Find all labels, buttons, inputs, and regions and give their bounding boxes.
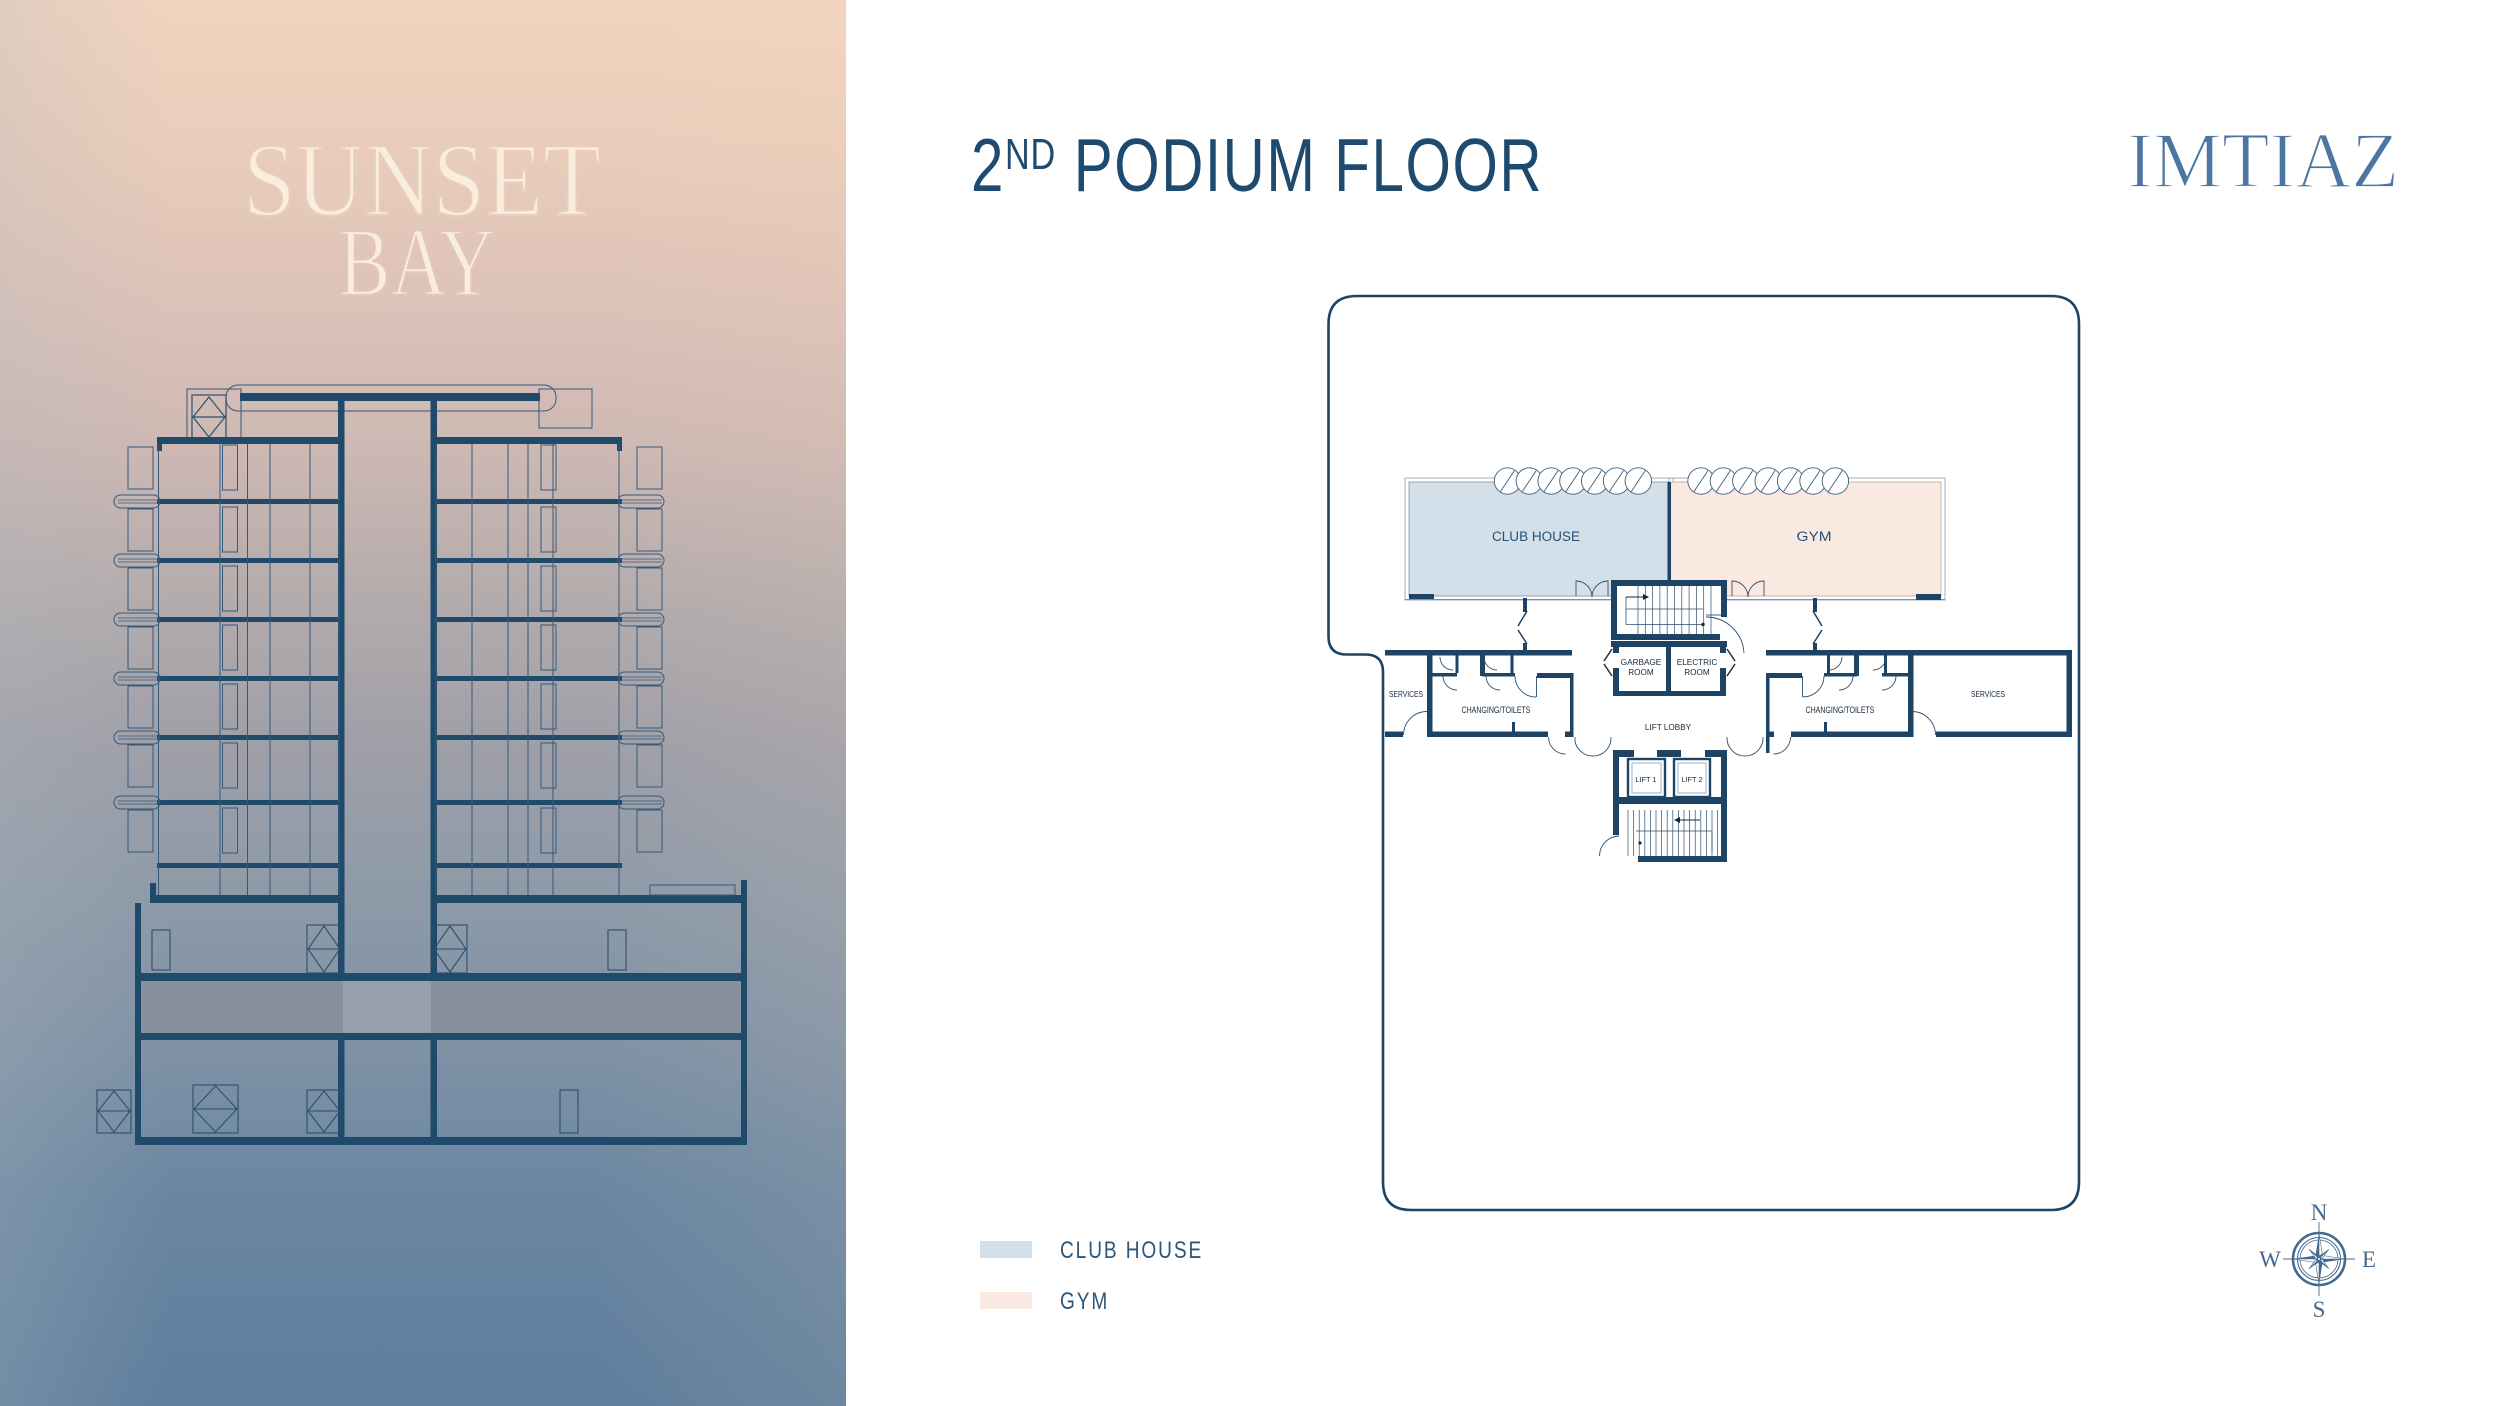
svg-text:LIFT 1: LIFT 1	[1635, 775, 1656, 784]
svg-text:IMTIAZ: IMTIAZ	[2127, 120, 2399, 200]
svg-text:W: W	[2259, 1247, 2281, 1272]
svg-text:GYM: GYM	[1797, 529, 1832, 544]
svg-text:SERVICES: SERVICES	[1971, 690, 2005, 699]
svg-text:CLUB HOUSE: CLUB HOUSE	[1492, 529, 1580, 544]
svg-text:S: S	[2313, 1297, 2326, 1322]
svg-text:ROOM: ROOM	[1684, 668, 1710, 677]
svg-text:N: N	[2311, 1200, 2328, 1225]
svg-text:GARBAGE: GARBAGE	[1621, 658, 1662, 667]
svg-text:CHANGING/TOILETS: CHANGING/TOILETS	[1462, 705, 1531, 715]
svg-text:E: E	[2362, 1247, 2376, 1272]
svg-text:LIFT LOBBY: LIFT LOBBY	[1645, 723, 1692, 732]
svg-text:BAY: BAY	[339, 209, 496, 316]
svg-text:SERVICES: SERVICES	[1389, 690, 1423, 699]
svg-text:ROOM: ROOM	[1628, 668, 1654, 677]
svg-text:ELECTRIC: ELECTRIC	[1677, 658, 1718, 667]
svg-text:CHANGING/TOILETS: CHANGING/TOILETS	[1806, 705, 1875, 715]
svg-text:LIFT 2: LIFT 2	[1681, 775, 1702, 784]
